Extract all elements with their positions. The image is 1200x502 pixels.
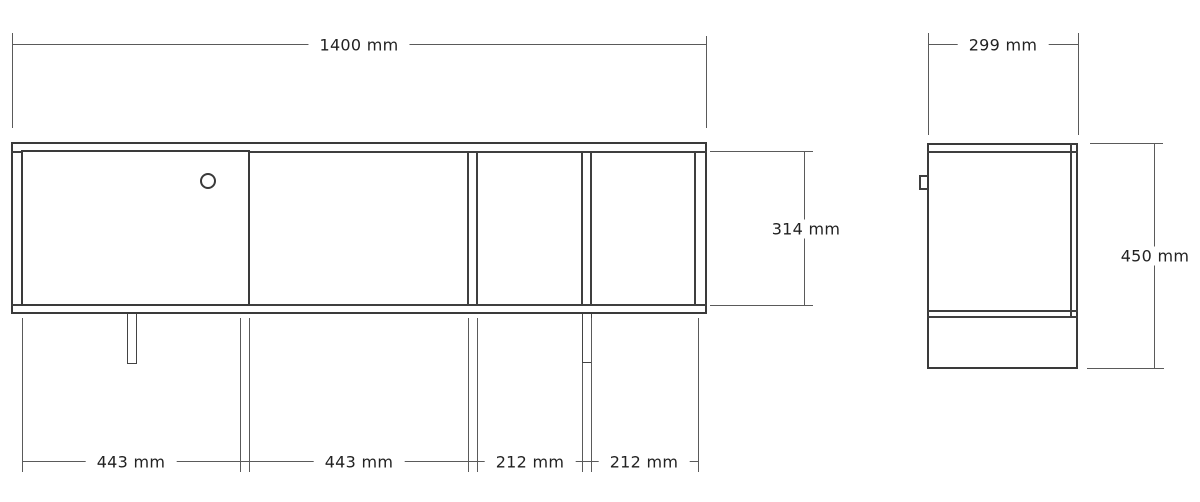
- extension-line: [1090, 143, 1163, 144]
- side-handle-profile: [919, 175, 928, 177]
- divider-line: [467, 151, 469, 306]
- extension-line: [706, 36, 707, 128]
- side-height-dimension-label: 450 mm: [1110, 247, 1200, 266]
- extension-line: [710, 151, 813, 152]
- door-handle-hole: [200, 173, 216, 189]
- extension-line: [698, 318, 699, 472]
- technical-drawing-canvas: 1400 mm 443 mm 443 mm 212 mm 212 mm: [0, 0, 1200, 502]
- extension-line: [591, 318, 592, 472]
- front-width-dimension-label: 1400 mm: [308, 36, 409, 55]
- extension-line: [468, 318, 469, 472]
- front-height-dimension-label: 314 mm: [761, 220, 852, 239]
- side-body-outline: [927, 143, 1078, 369]
- extension-line: [12, 33, 13, 128]
- extension-line: [1078, 33, 1079, 135]
- side-top-panel-line: [927, 151, 1078, 153]
- extension-line: [477, 318, 478, 472]
- extension-line: [928, 33, 929, 135]
- divider-line: [590, 151, 592, 306]
- extension-line: [710, 305, 813, 306]
- extension-line: [22, 318, 23, 472]
- front-section-dimension-label: 212 mm: [599, 453, 690, 472]
- front-section-dimension-label: 212 mm: [485, 453, 576, 472]
- cabinet-right-inner-line: [694, 151, 696, 306]
- side-bottom-panel-line: [927, 310, 1078, 312]
- extension-line: [249, 318, 250, 472]
- front-section-dimension-label: 443 mm: [86, 453, 177, 472]
- side-plinth-top-line: [927, 316, 1078, 318]
- extension-line: [240, 318, 241, 472]
- divider-line: [581, 151, 583, 306]
- door-panel: [21, 150, 250, 306]
- divider-line: [476, 151, 478, 306]
- side-handle-profile: [919, 188, 928, 190]
- side-back-edge-line: [1070, 143, 1072, 318]
- leg: [127, 314, 137, 364]
- side-width-dimension-label: 299 mm: [958, 36, 1049, 55]
- extension-line: [582, 363, 583, 472]
- front-section-dimension-label: 443 mm: [314, 453, 405, 472]
- extension-line: [1087, 368, 1164, 369]
